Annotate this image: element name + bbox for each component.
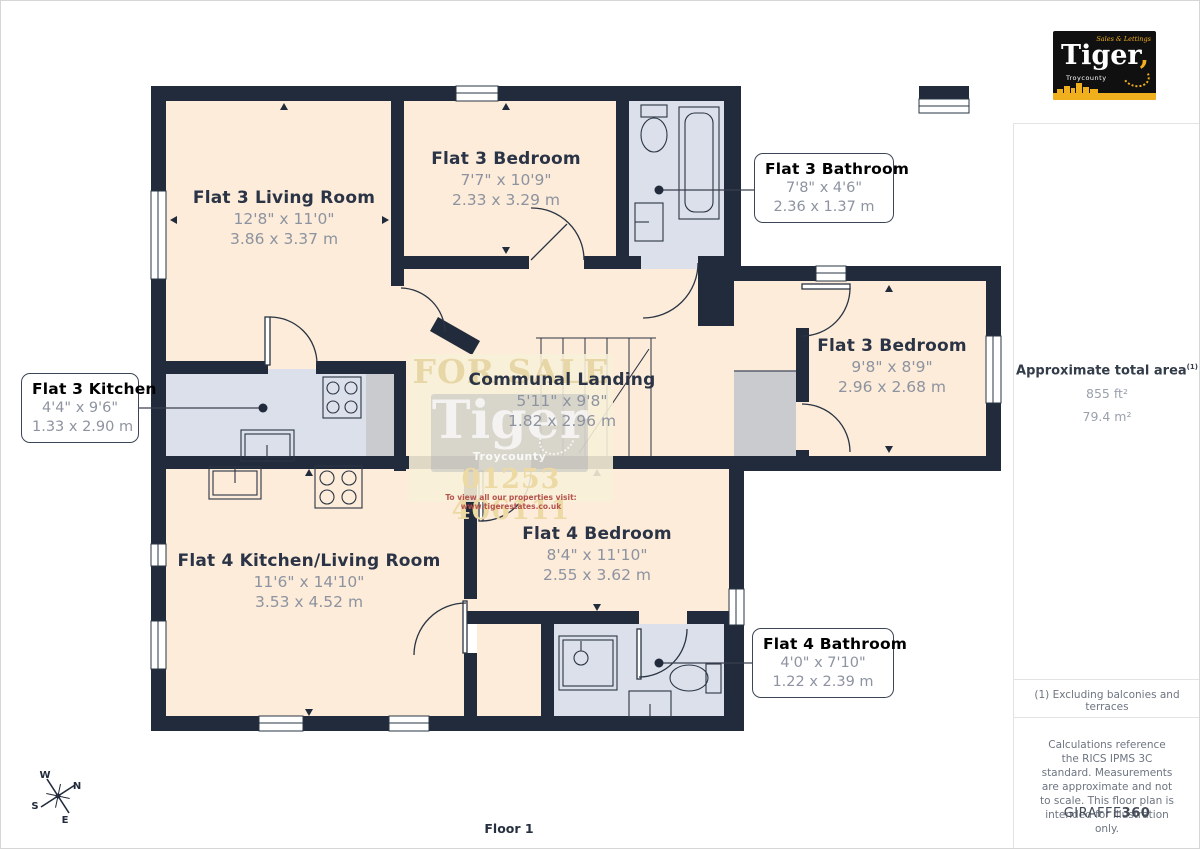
sidebar-divider-vertical	[1013, 123, 1014, 849]
callout-flat3-kitchen: Flat 3 Kitchen 4'4" x 9'6" 1.33 x 2.90 m	[21, 373, 139, 443]
info-sidebar: Sales & Lettings Tiger Troycounty Approx…	[1013, 1, 1200, 849]
giraffe360-brand: GIRAFFE360	[1013, 806, 1200, 821]
room-label-flat4-kitchen-living: Flat 4 Kitchen/Living Room 11'6" x 14'10…	[178, 550, 441, 612]
floorplan-page: W N S E FOR SALE Tiger Troycounty 01253 …	[0, 0, 1200, 849]
area-title: Approximate total area(1)	[1013, 363, 1200, 378]
logo-skyline-icon	[1057, 83, 1098, 93]
room-label-flat3-bedroom-top: Flat 3 Bedroom 7'7" x 10'9" 2.33 x 3.29 …	[431, 148, 581, 210]
floor-label: Floor 1	[484, 821, 533, 836]
room-label-communal-landing: Communal Landing 5'11" x 9'8" 1.82 x 2.9…	[469, 369, 656, 431]
area-sqm: 79.4 m²	[1013, 409, 1200, 424]
room-label-flat3-bedroom-right: Flat 3 Bedroom 9'8" x 8'9" 2.96 x 2.68 m	[817, 335, 967, 397]
compass-e: E	[62, 815, 69, 826]
sidebar-divider-note1	[1013, 679, 1200, 680]
footnote-calculations: Calculations reference the RICS IPMS 3C …	[1039, 738, 1175, 836]
sidebar-divider-top	[1013, 123, 1200, 124]
compass-w: W	[39, 770, 50, 781]
room-label-flat4-bedroom: Flat 4 Bedroom 8'4" x 11'10" 2.55 x 3.62…	[522, 523, 672, 585]
compass: W N S E	[31, 770, 81, 826]
logo-gold-bar	[1053, 93, 1156, 100]
compass-s: S	[31, 801, 38, 812]
room-label-flat3-living: Flat 3 Living Room 12'8" x 11'0" 3.86 x …	[193, 187, 375, 249]
logo-subtitle: Troycounty	[1066, 74, 1107, 82]
callout-flat4-bathroom: Flat 4 Bathroom 4'0" x 7'10" 1.22 x 2.39…	[752, 628, 894, 698]
tiger-logo: Sales & Lettings Tiger Troycounty	[1053, 31, 1156, 100]
area-summary: Approximate total area(1) 855 ft² 79.4 m…	[1013, 363, 1200, 424]
compass-n: N	[73, 781, 81, 792]
area-sqft: 855 ft²	[1013, 386, 1200, 401]
footnote-balconies: (1) Excluding balconies and terraces	[1023, 689, 1191, 713]
sidebar-divider-note2	[1013, 717, 1200, 718]
area-footnote-marker: (1)	[1187, 363, 1198, 371]
callout-flat3-bathroom: Flat 3 Bathroom 7'8" x 4'6" 2.36 x 1.37 …	[754, 153, 894, 223]
watermark-tagline: To view all our properties visit: www.ti…	[409, 493, 613, 511]
